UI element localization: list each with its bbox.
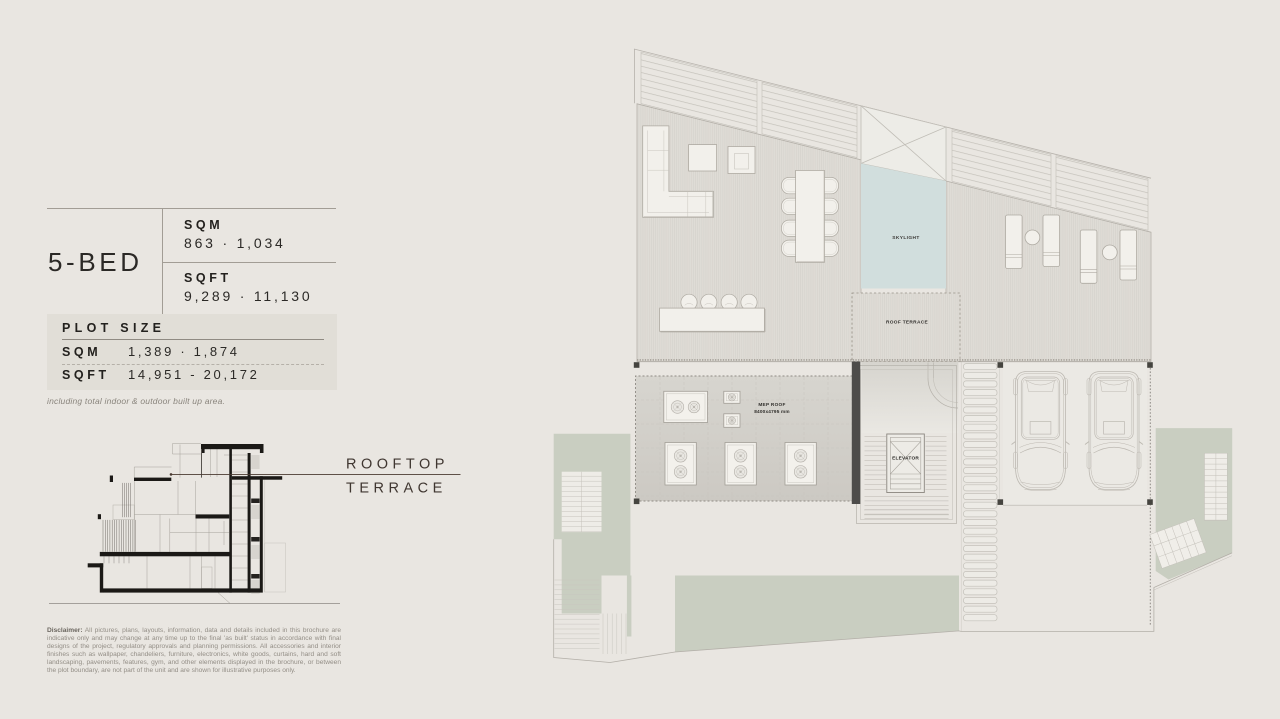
- svg-text:ROOFTOP: ROOFTOP: [346, 456, 449, 472]
- svg-text:SKYLIGHT: SKYLIGHT: [892, 235, 919, 241]
- svg-text:8400x4795 mm: 8400x4795 mm: [754, 409, 790, 414]
- svg-text:TERRACE: TERRACE: [346, 481, 447, 497]
- svg-text:ROOF TERRACE: ROOF TERRACE: [886, 319, 928, 325]
- svg-text:ELEVATOR: ELEVATOR: [892, 456, 919, 462]
- svg-text:MEP ROOF: MEP ROOF: [758, 402, 785, 407]
